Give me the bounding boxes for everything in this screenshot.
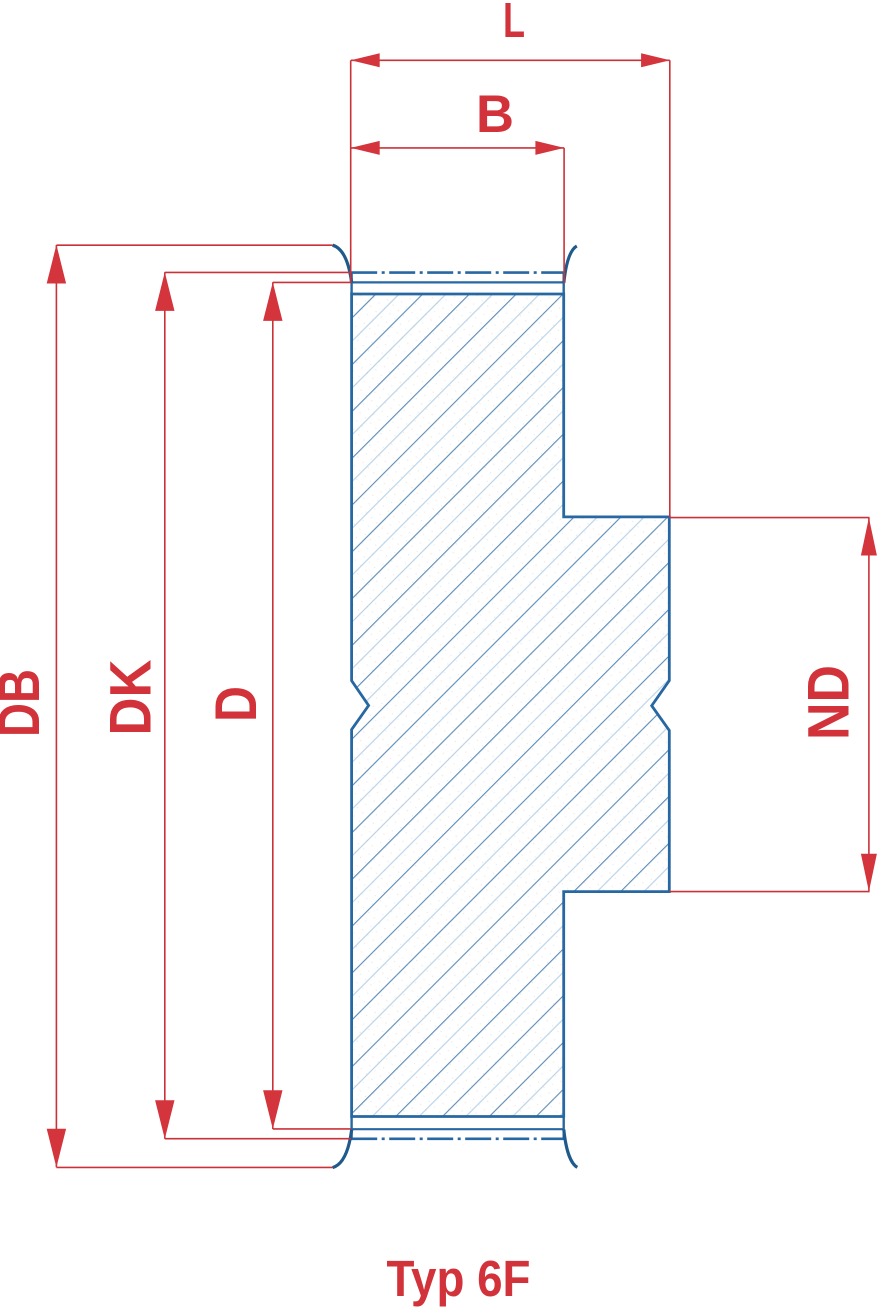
svg-text:L: L <box>503 0 525 48</box>
svg-text:D: D <box>204 686 269 722</box>
svg-text:B: B <box>476 85 514 144</box>
svg-text:ND: ND <box>797 665 862 740</box>
svg-text:DB: DB <box>0 669 52 737</box>
svg-text:DK: DK <box>99 659 164 735</box>
svg-text:Typ 6F: Typ 6F <box>387 1250 531 1307</box>
